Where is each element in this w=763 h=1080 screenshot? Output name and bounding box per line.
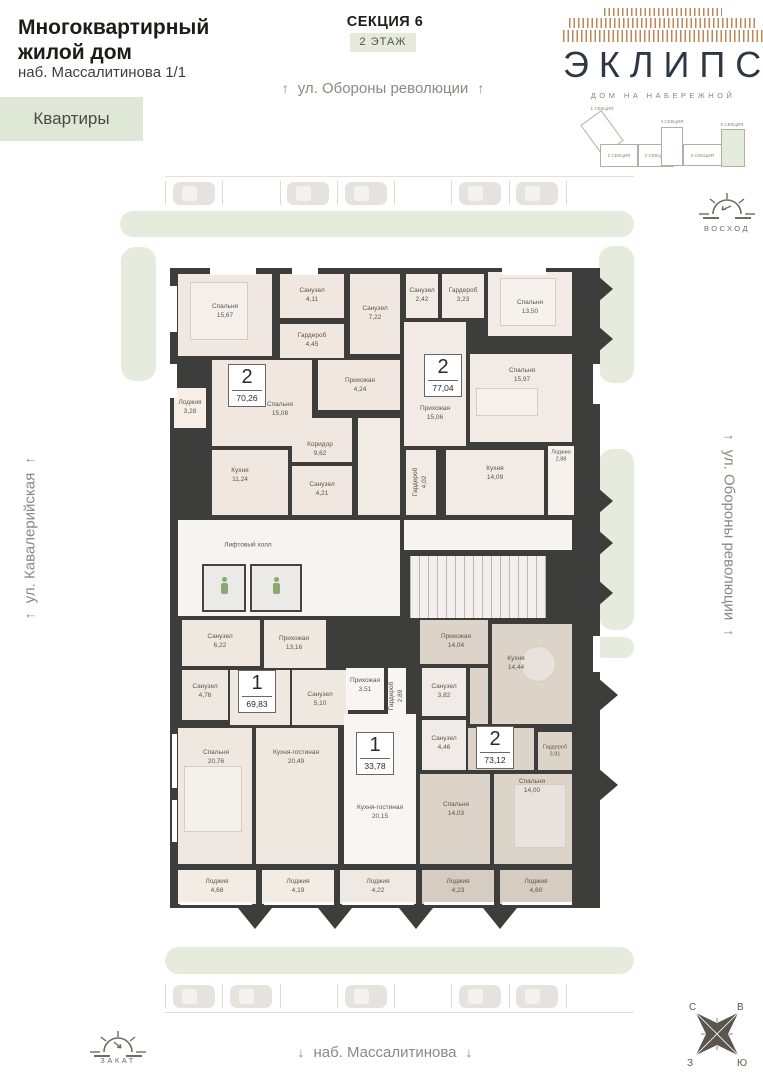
room-label: Спальня15,97: [509, 367, 535, 385]
room-label: Спальня20,76: [203, 749, 229, 767]
room-label: Лоджия2,88: [551, 450, 571, 465]
street-name: ул. Кавалерийская: [22, 473, 39, 604]
bay-window-icon: [598, 326, 613, 352]
street-label-top: ↑ул. Обороны революции↑: [233, 80, 533, 97]
building-floor-plan: Спальня15,67 Санузел4,11 Санузел7,22 Гар…: [170, 268, 600, 908]
street-label-right: ↑ул. Обороны революции↑: [721, 425, 738, 646]
minimap-section-label: 2 СЕКЦИЯ: [608, 153, 631, 158]
room-label: Спальня13,50: [517, 299, 543, 317]
room-label: Санузел4,21: [309, 481, 334, 499]
room-label: Кухня14,44: [507, 655, 524, 673]
room-label: Спальня14,00: [519, 778, 545, 796]
parking-line: [165, 176, 634, 177]
car-icon: [459, 985, 501, 1008]
logo-ornament-icon: [604, 8, 722, 16]
bay-window-icon: [399, 908, 433, 929]
floor-plan-page: Многоквартирный жилой дом наб. Массалити…: [0, 0, 763, 1080]
room-label: Санузел2,42: [409, 287, 434, 305]
room-label: Прихожая15,06: [420, 405, 450, 423]
building-address: наб. Массалитинова 1/1: [18, 64, 186, 81]
room-label: Кухня11,24: [231, 467, 248, 485]
room-area[interactable]: [470, 668, 488, 724]
room-label: Санузел4,76: [192, 683, 217, 701]
car-icon: [345, 182, 387, 205]
apartments-button[interactable]: Квартиры: [0, 97, 143, 141]
car-icon: [173, 182, 215, 205]
logo: ЭКЛИПС ДОМ НА НАБЕРЕЖНОЙ: [563, 8, 763, 100]
logo-tagline: ДОМ НА НАБЕРЕЖНОЙ: [563, 91, 763, 100]
street-name: ул. Обороны революции: [298, 80, 469, 97]
bay-window-icon: [598, 678, 618, 712]
elevator-hall-label: Лифтовый холл: [224, 542, 271, 551]
car-icon: [345, 985, 387, 1008]
room-label: Прихожая3,51: [350, 677, 380, 695]
room-area[interactable]: [420, 774, 490, 864]
compass-rose-icon: С В З Ю: [675, 992, 759, 1076]
arrow-up-icon: ↑: [22, 603, 38, 628]
sunrise-icon: [697, 188, 757, 222]
section-title: СЕКЦИЯ 6: [285, 14, 485, 30]
car-icon: [459, 182, 501, 205]
compass-north-label: С: [689, 1002, 696, 1013]
lawn-strip: [121, 247, 156, 381]
car-icon: [173, 985, 215, 1008]
sunset-icon: [88, 1026, 148, 1060]
arrow-down-icon: ↓: [288, 1044, 313, 1060]
compass-west-label: З: [687, 1058, 693, 1069]
room-label: Лоджия4,19: [286, 878, 309, 896]
room-label: Санузел4,11: [299, 287, 324, 305]
floor-badge: 2 ЭТАЖ: [350, 33, 416, 52]
minimap-section-6-active[interactable]: [721, 129, 745, 167]
logo-ornament-icon: [563, 30, 763, 42]
page-title: Многоквартирный жилой дом: [18, 16, 268, 66]
minimap-section-label: 6 СЕКЦИЯ: [710, 122, 754, 127]
room-label: Прихожая4,24: [345, 377, 375, 395]
room-label: Прихожая14,04: [441, 633, 471, 651]
room-label: Гардероб3,91: [543, 745, 567, 760]
bay-window-icon: [318, 908, 352, 929]
room-label: Лоджия3,28: [178, 399, 201, 417]
room-label: Спальня15,08: [267, 401, 293, 419]
lawn-strip: [165, 947, 634, 974]
compass-east-label: В: [737, 1002, 744, 1013]
car-icon: [230, 985, 272, 1008]
logo-name: ЭКЛИПС: [563, 44, 763, 86]
car-icon: [516, 985, 558, 1008]
room-label: Прихожая13,16: [279, 635, 309, 653]
room-label: Спальня14,03: [443, 801, 469, 819]
arrow-up-icon: ↑: [722, 425, 738, 450]
bay-window-icon: [598, 488, 613, 514]
room-label: Коридор9,62: [307, 441, 333, 459]
room-label: Лоджия4,22: [366, 878, 389, 896]
staircase: [410, 556, 546, 618]
minimap-section-5[interactable]: 5 СЕКЦИЯ: [683, 144, 722, 166]
bay-window-icon: [598, 276, 613, 302]
room-area[interactable]: [212, 450, 288, 515]
room-label: Лоджия4,60: [524, 878, 547, 896]
furniture-bed: [184, 766, 242, 832]
room-label: Лоджия4,68: [205, 878, 228, 896]
apartment-badge[interactable]: 133,78: [356, 732, 394, 775]
bay-window-icon: [598, 580, 613, 606]
room-label: Гардероб4,02: [412, 468, 430, 497]
minimap-section-label: 5 СЕКЦИЯ: [691, 153, 714, 158]
room-label: Кухня14,09: [486, 465, 503, 483]
lawn-strip: [120, 211, 634, 237]
room-label: Санузел7,22: [362, 305, 387, 323]
bay-window-icon: [483, 908, 517, 929]
room-label: Кухня-гостиная20,49: [273, 749, 319, 767]
compass-south-label: Ю: [737, 1058, 747, 1069]
logo-ornament-icon: [569, 18, 757, 28]
elevator: [250, 564, 302, 612]
minimap-section-label: 4 СЕКЦИЯ: [652, 119, 692, 124]
bay-window-icon: [238, 908, 272, 929]
corridor: [404, 520, 572, 550]
room-label: Гардероб2,89: [388, 682, 406, 711]
lawn-strip: [599, 246, 634, 383]
street-name: наб. Массалитинова: [313, 1044, 456, 1061]
room-label: Лоджия4,23: [446, 878, 469, 896]
room-label: Санузел4,46: [431, 735, 456, 753]
furniture-sofa: [476, 388, 538, 416]
arrow-up-icon: ↑: [273, 80, 298, 96]
arrow-up-icon: ↑: [22, 448, 38, 473]
sections-minimap: 1 СЕКЦИЯ 2 СЕКЦИЯ 3 СЕКЦИЯ 4 СЕКЦИЯ 5 СЕ…: [575, 100, 760, 178]
arrow-down-icon: ↓: [457, 1044, 482, 1060]
arrow-up-icon: ↑: [468, 80, 493, 96]
parking-line: [165, 1012, 634, 1013]
room-label: Санузел6,22: [207, 633, 232, 651]
minimap-section-4[interactable]: [661, 127, 683, 166]
room-area[interactable]: [358, 418, 400, 515]
bay-window-icon: [598, 768, 618, 802]
apartment-badge[interactable]: 169,83: [238, 670, 276, 713]
sunset-label: ЗАКАТ: [81, 1056, 155, 1065]
room-label: Спальня15,67: [212, 303, 238, 321]
street-label-left: ↑ул. Кавалерийская↑: [22, 448, 39, 629]
arrow-up-icon: ↑: [722, 620, 738, 645]
room-label: Санузел3,82: [431, 683, 456, 701]
car-icon: [287, 182, 329, 205]
street-label-bottom: ↓наб. Массалитинова↓: [275, 1044, 495, 1061]
bay-window-icon: [598, 530, 613, 556]
sunrise-label: ВОСХОД: [690, 224, 763, 233]
minimap-section-2[interactable]: 2 СЕКЦИЯ: [600, 144, 638, 167]
apartment-badge[interactable]: 270,26: [228, 364, 266, 407]
room-label: Кухня-гостиная20,15: [357, 804, 403, 822]
furniture-table: [520, 646, 556, 682]
room-label: Гардероб3,23: [449, 287, 478, 305]
room-label: Санузел5,10: [307, 691, 332, 709]
car-icon: [516, 182, 558, 205]
elevator: [202, 564, 246, 612]
apartment-badge[interactable]: 273,12: [476, 726, 514, 769]
apartment-badge[interactable]: 277,04: [424, 354, 462, 397]
room-label: Гардероб4,45: [298, 332, 327, 350]
street-name: ул. Обороны революции: [721, 450, 738, 621]
